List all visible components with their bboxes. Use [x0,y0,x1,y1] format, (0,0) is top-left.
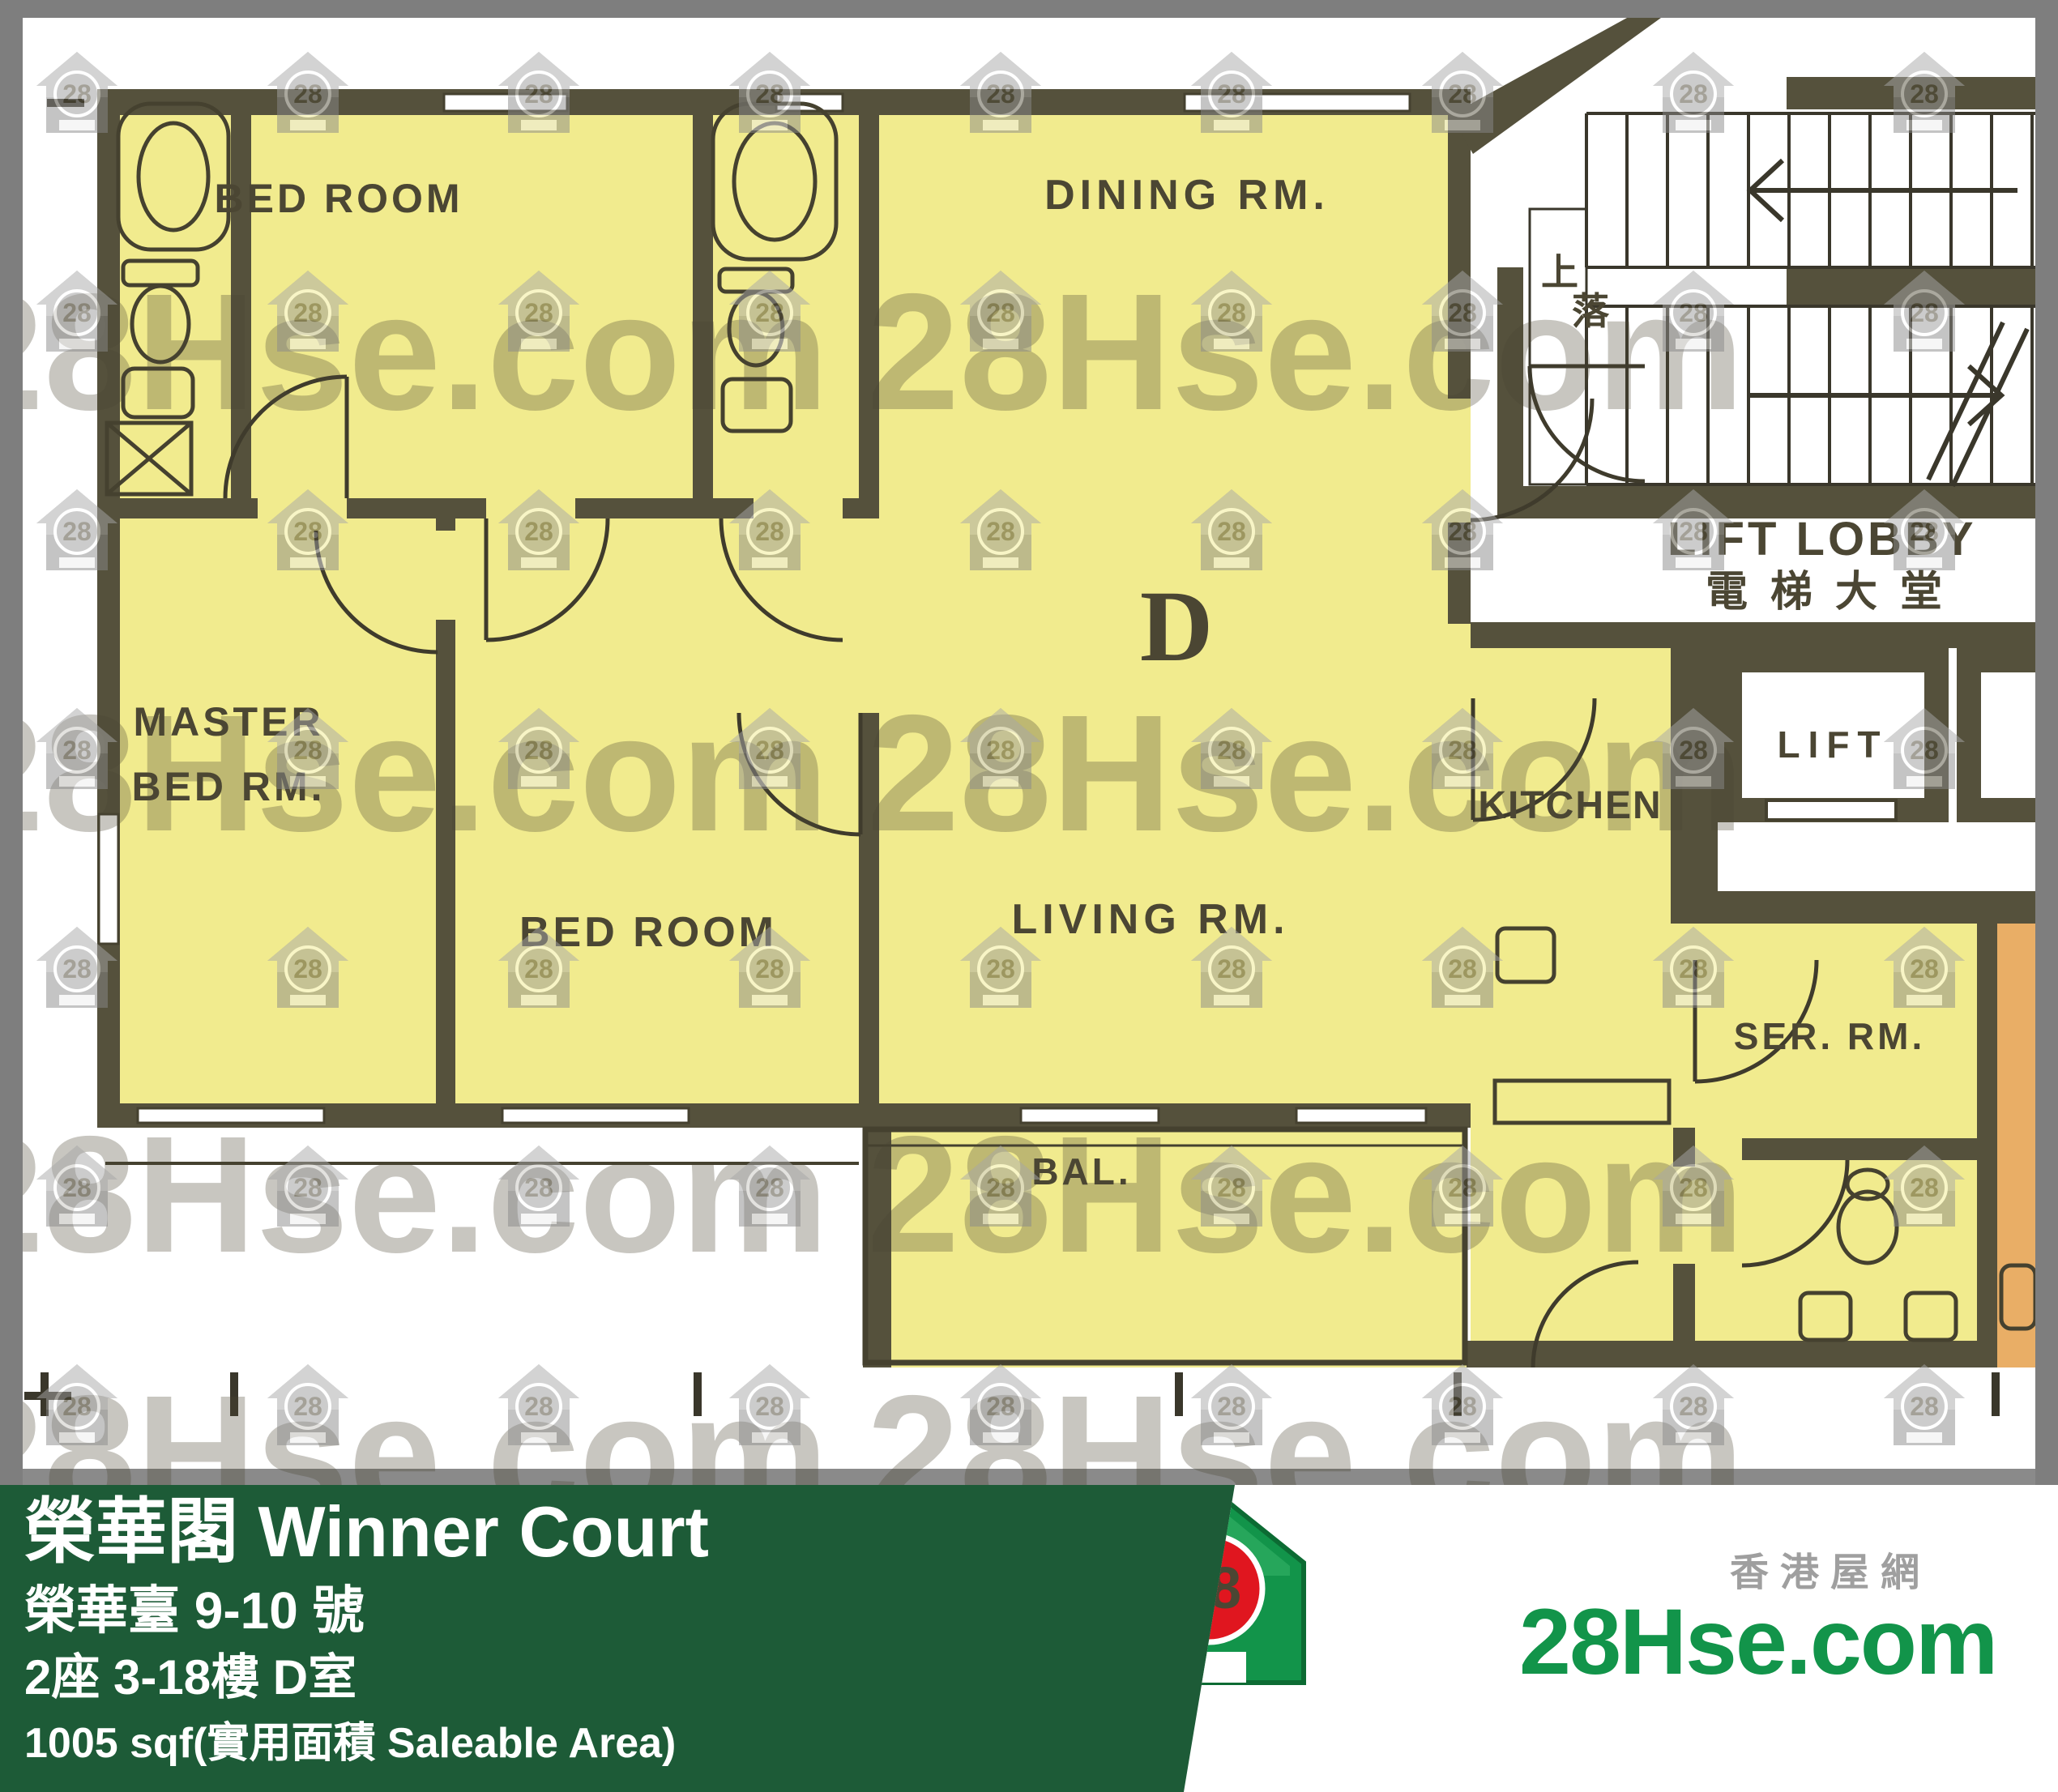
svg-text:28: 28 [62,298,92,327]
svg-text:28: 28 [1910,517,1939,546]
svg-text:28: 28 [1679,1173,1708,1202]
lift-door [1766,800,1896,820]
svg-text:28: 28 [1679,517,1708,546]
svg-text:28: 28 [1217,954,1246,983]
svg-text:28: 28 [1217,298,1246,327]
label-living-room: LIVING RM. [1011,896,1289,943]
svg-text:28: 28 [755,1392,784,1421]
svg-text:28: 28 [986,954,1015,983]
label-lift-lobby-cn: 電梯大堂 [1706,569,1965,616]
svg-text:28: 28 [755,517,784,546]
svg-text:28: 28 [1679,298,1708,327]
svg-text:28: 28 [524,736,553,765]
svg-text:28: 28 [1448,954,1477,983]
svg-text:28: 28 [1217,736,1246,765]
svg-text:28: 28 [1448,1392,1477,1421]
unit-info: 2座 3-18樓 D室 [24,1652,357,1703]
svg-text:28: 28 [293,298,322,327]
svg-text:28: 28 [1217,1392,1246,1421]
floorplan-page: BED ROOM DINING RM. MASTER BED RM. BED R… [0,0,2058,1792]
svg-text:28: 28 [62,1392,92,1421]
28hse-watermark-text: 28Hse.com [0,681,829,866]
svg-text:28: 28 [293,79,322,109]
svg-text:28: 28 [62,736,92,765]
svg-text:28: 28 [524,1392,553,1421]
svg-text:28: 28 [1679,1392,1708,1421]
svg-text:28: 28 [524,298,553,327]
label-unit-d: D [1140,571,1213,683]
svg-text:28: 28 [755,79,784,109]
svg-text:28: 28 [1910,1392,1939,1421]
svg-text:28: 28 [62,517,92,546]
svg-text:28: 28 [1217,517,1246,546]
28hse-watermark-text: 28Hse.com [0,259,829,445]
svg-text:28: 28 [1448,1173,1477,1202]
svg-text:28: 28 [1910,954,1939,983]
svg-text:28: 28 [755,1173,784,1202]
svg-text:28: 28 [293,1392,322,1421]
svg-text:28: 28 [1448,736,1477,765]
svg-text:28: 28 [1448,517,1477,546]
svg-text:28: 28 [1217,79,1246,109]
svg-text:28: 28 [986,1392,1015,1421]
saleable-area: 1005 sqf(實用面積 Saleable Area) [24,1722,676,1766]
28hse-watermark-text: 28Hse.com [0,1102,829,1287]
svg-text:28: 28 [755,298,784,327]
svg-text:28: 28 [1679,954,1708,983]
svg-text:28: 28 [755,954,784,983]
brand-text: 28Hse.com [1519,1589,1996,1696]
svg-text:28: 28 [1448,298,1477,327]
svg-text:28: 28 [524,1173,553,1202]
svg-text:28: 28 [986,1173,1015,1202]
svg-text:28: 28 [293,1173,322,1202]
svg-text:28: 28 [1910,736,1939,765]
estate-name: 榮華閣 Winner Court [24,1495,709,1569]
svg-text:28: 28 [986,517,1015,546]
svg-text:28: 28 [524,954,553,983]
svg-text:28: 28 [62,79,92,109]
label-lift: LIFT [1777,723,1888,766]
label-service-room: SER. RM. [1734,1015,1925,1057]
svg-text:28: 28 [986,736,1015,765]
svg-text:28: 28 [524,79,553,109]
svg-text:28: 28 [1217,1173,1246,1202]
logo-area: 香港屋網 28 28Hse.com [1118,1485,2058,1792]
svg-text:28: 28 [986,79,1015,109]
svg-text:28: 28 [1679,736,1708,765]
label-bedroom-1: BED ROOM [215,176,463,221]
svg-text:28: 28 [1448,79,1477,109]
svg-text:28: 28 [755,736,784,765]
svg-text:28: 28 [62,1173,92,1202]
svg-text:28: 28 [293,736,322,765]
svg-text:28: 28 [293,517,322,546]
svg-text:28: 28 [986,298,1015,327]
svg-text:28: 28 [1679,79,1708,109]
svg-text:28: 28 [1910,1173,1939,1202]
label-dining-room: DINING RM. [1044,172,1330,219]
svg-text:28: 28 [1910,79,1939,109]
svg-text:28: 28 [62,954,92,983]
svg-text:28: 28 [1910,298,1939,327]
svg-text:28: 28 [524,517,553,546]
svg-text:28: 28 [293,954,322,983]
estate-address: 榮華臺 9-10 號 [24,1584,365,1638]
